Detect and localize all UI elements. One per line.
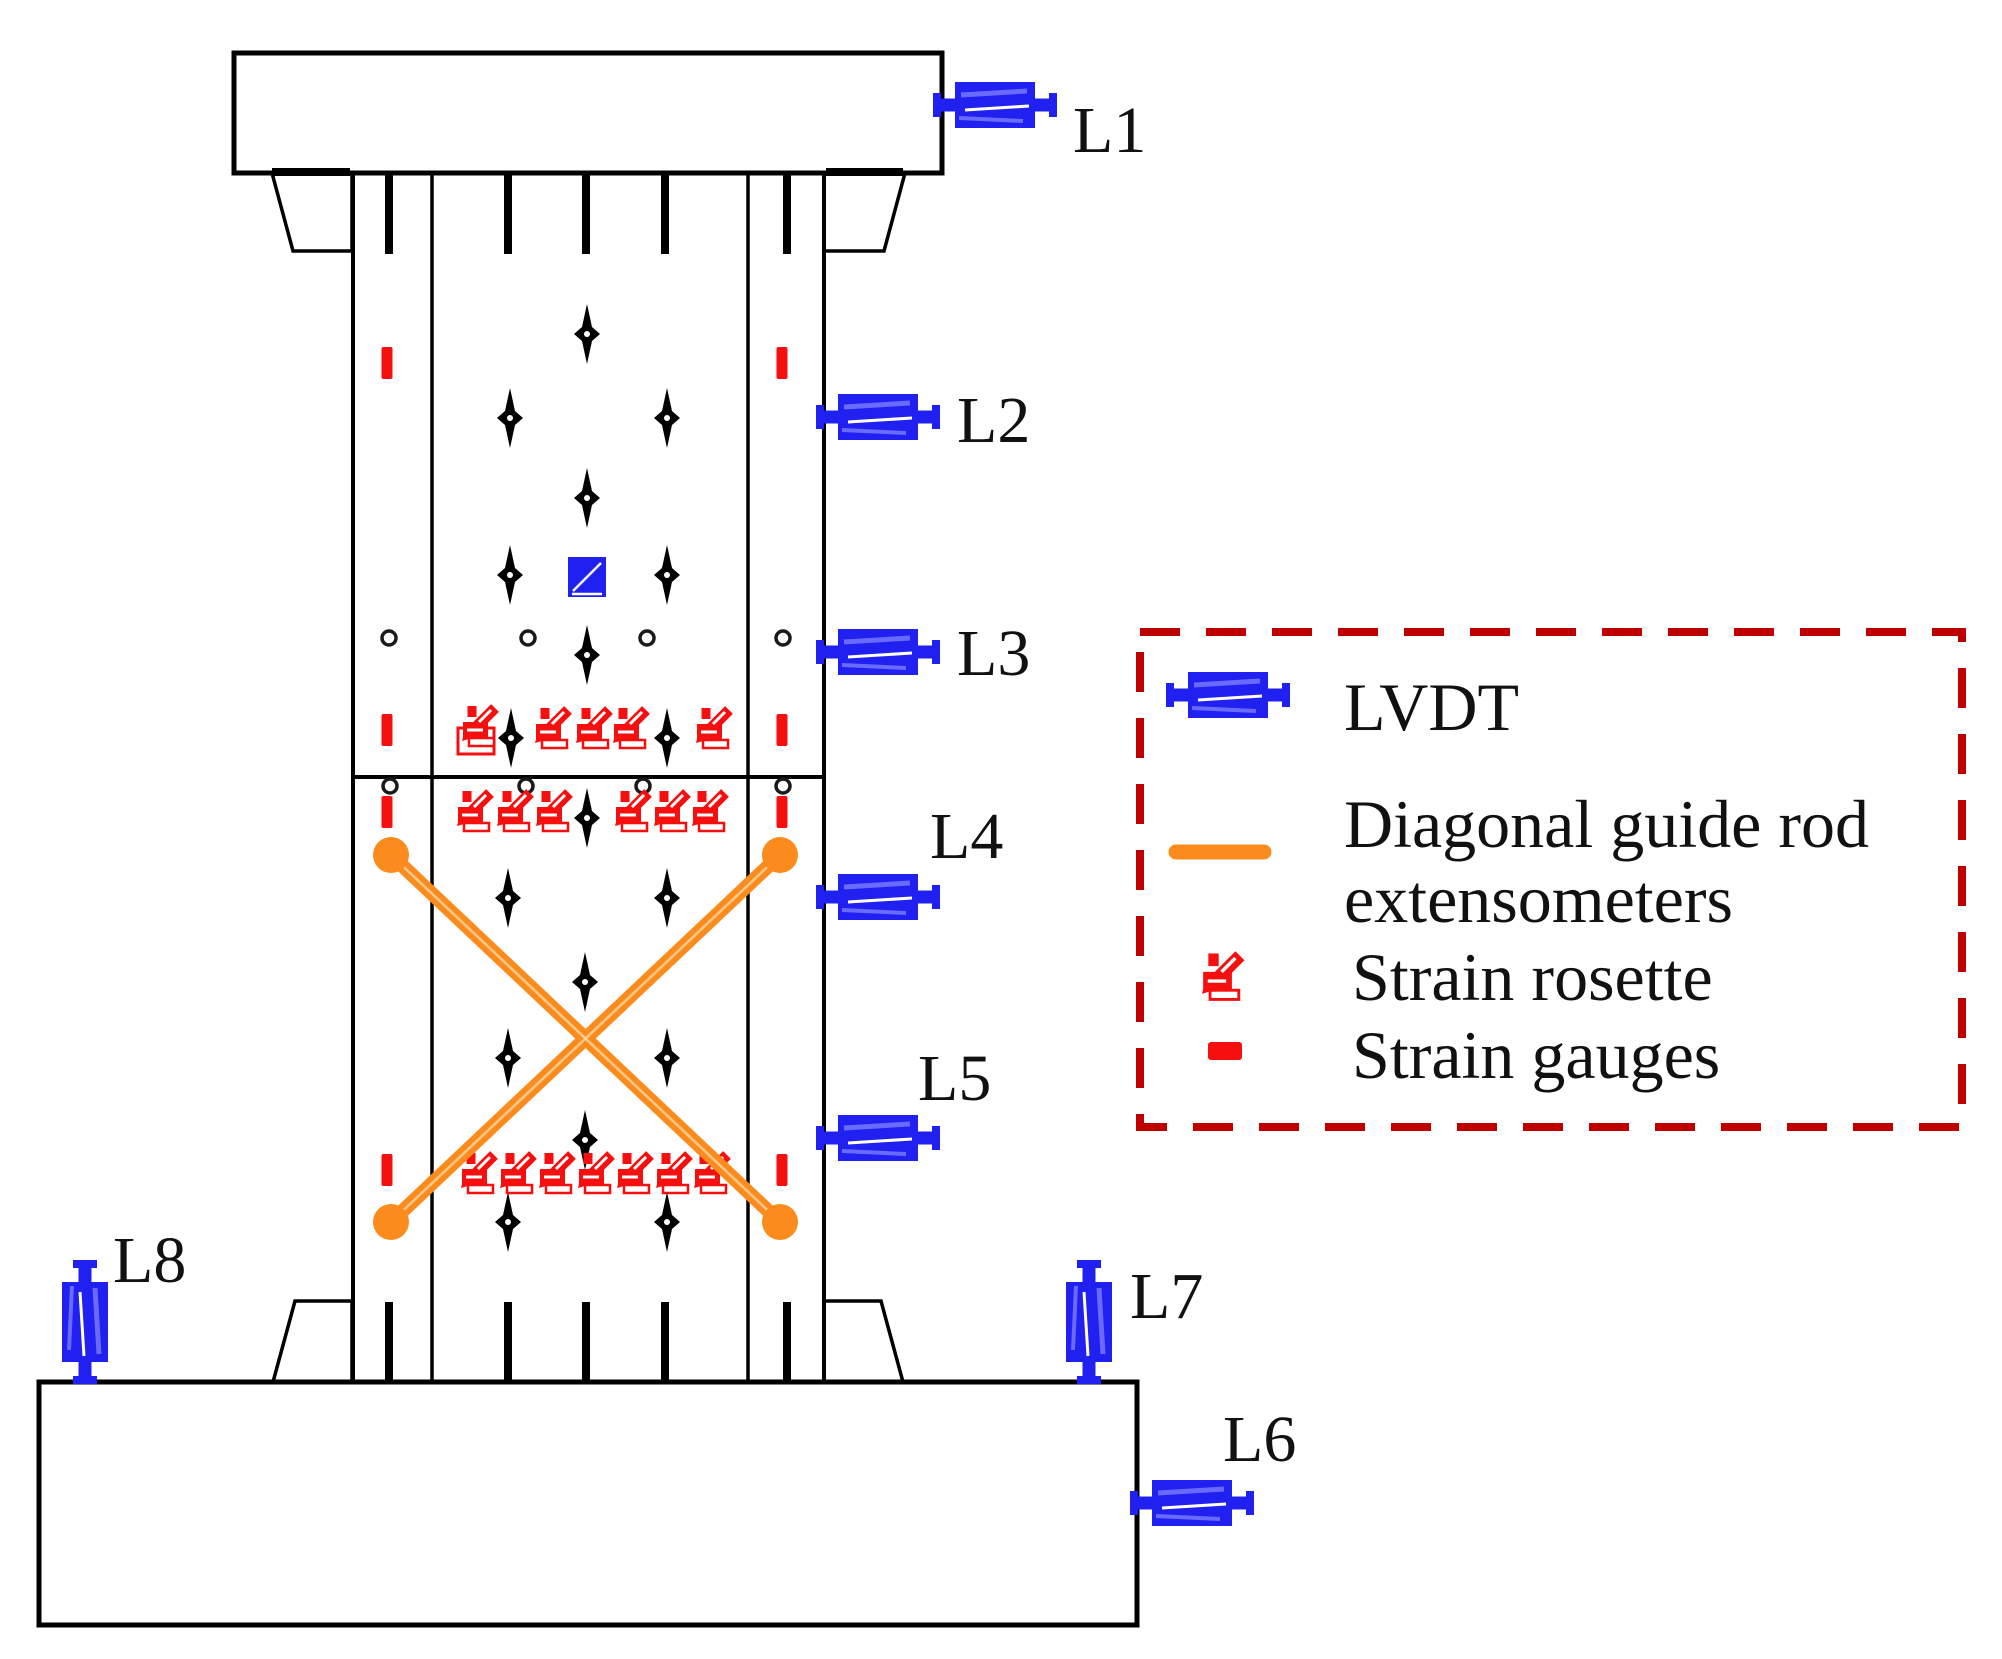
diamond-marker-icon — [654, 388, 680, 448]
lvdt-label-l1: L1 — [1073, 94, 1146, 167]
strain-rosette-icon — [535, 708, 568, 748]
hole-circle-icon — [640, 631, 654, 645]
legend-label-lvdt: LVDT — [1344, 669, 1519, 745]
lvdt-icon — [1166, 672, 1290, 718]
diamond-marker-icon — [654, 545, 680, 605]
strain-gauge-icon — [777, 347, 788, 379]
strain-gauge-icon — [777, 796, 788, 828]
legend-label-extensometer-line1: Diagonal guide rod — [1344, 786, 1869, 862]
diamond-marker-icon — [654, 1028, 680, 1088]
extensometer-anchor — [762, 1204, 798, 1240]
lvdt-label-l6: L6 — [1223, 1403, 1296, 1476]
hole-circle-icon — [521, 631, 535, 645]
diamond-marker-icon — [495, 1028, 521, 1088]
strain-gauge-icon — [382, 796, 393, 828]
bottom-corbel-left — [273, 1301, 352, 1382]
lvdt-label-l4: L4 — [930, 800, 1003, 873]
strain-gauge-icon — [382, 714, 393, 746]
lvdt-l4: L4 — [816, 800, 1003, 920]
legend: LVDT Diagonal guide rod extensometers St… — [1140, 632, 1962, 1127]
diamond-marker-icon — [497, 545, 523, 605]
lvdt-l2: L2 — [816, 384, 1030, 457]
hole-circle-icon — [382, 631, 396, 645]
bottom-rebar-ticks — [389, 1302, 787, 1380]
strain-rosette-icon — [617, 1153, 650, 1193]
strain-gauge-icon — [382, 1154, 393, 1186]
strain-rosette-icon — [656, 1153, 689, 1193]
strain-gauge-icon — [382, 347, 393, 379]
lvdt-l7: L7 — [1066, 1260, 1203, 1384]
strain-gauge-icon — [1208, 1042, 1242, 1060]
strain-gauge-icon — [777, 1154, 788, 1186]
legend-label-gauges: Strain gauges — [1352, 1017, 1720, 1093]
lvdt-label-l7: L7 — [1130, 1260, 1203, 1333]
strain-rosette-icon — [613, 708, 646, 748]
strain-rosette-icon — [692, 791, 725, 831]
diamond-marker-icon — [574, 304, 600, 364]
strain-rosette-icon — [536, 791, 569, 831]
extensometer-anchor — [762, 837, 798, 873]
strain-rosette-row-upper — [458, 706, 729, 754]
strain-rosette-icon — [497, 791, 530, 831]
diamond-marker-icon — [654, 708, 680, 768]
strain-rosette-icon — [696, 708, 729, 748]
strain-rosette-row-lower — [461, 1153, 727, 1193]
diamond-marker-icon — [495, 1192, 521, 1252]
diamond-marker-icon — [654, 1192, 680, 1252]
hole-circle-icon — [776, 631, 790, 645]
strain-rosette-icon — [615, 791, 648, 831]
diamond-marker-icon — [574, 625, 600, 685]
top-corbel-left — [272, 172, 352, 251]
diamond-marker-icon — [495, 868, 521, 928]
strain-rosette-icon — [500, 1153, 533, 1193]
lvdt-label-l2: L2 — [957, 384, 1030, 457]
diamond-marker-icon — [574, 788, 600, 848]
legend-label-rosette: Strain rosette — [1352, 939, 1713, 1015]
foundation-base — [39, 1382, 1137, 1625]
diamond-marker-icon — [572, 952, 598, 1012]
strain-rosette-icon — [457, 791, 490, 831]
top-rebar-ticks — [389, 175, 787, 254]
specimen-instrumentation-diagram: L1 L2 L3 L4 L5 L6 L7 L8 LVDT Diagonal gu… — [0, 0, 2002, 1659]
hole-circle-icon — [776, 779, 790, 793]
strain-rosette-icon — [539, 1153, 572, 1193]
strain-rosette-icon — [654, 791, 687, 831]
lvdt-l3: L3 — [816, 617, 1030, 690]
legend-label-extensometer-line2: extensometers — [1344, 861, 1733, 937]
strain-gauge-icon — [777, 714, 788, 746]
extensometer-anchor — [373, 837, 409, 873]
extensometer-anchor — [373, 1204, 409, 1240]
bottom-corbel-right — [824, 1301, 903, 1382]
diamond-marker-icon — [654, 868, 680, 928]
lvdt-label-l3: L3 — [957, 617, 1030, 690]
diamond-marker-icon — [497, 388, 523, 448]
strain-rosette-icon — [1202, 953, 1240, 999]
lvdt-l6: L6 — [1130, 1403, 1296, 1526]
diamond-marker-icon — [574, 468, 600, 528]
lvdt-l8: L8 — [62, 1224, 186, 1384]
lvdt-label-l8: L8 — [113, 1224, 186, 1297]
lvdt-l5: L5 — [816, 1042, 991, 1161]
lvdt-l1: L1 — [933, 82, 1146, 167]
diamond-marker-icon — [498, 708, 524, 768]
strain-rosette-icon — [576, 708, 609, 748]
hole-circle-icon — [383, 779, 397, 793]
blue-target-square — [568, 557, 606, 597]
strain-gauges — [382, 347, 788, 1186]
lvdt-label-l5: L5 — [918, 1042, 991, 1115]
top-cap-beam — [234, 53, 942, 173]
top-corbel-right — [824, 172, 905, 251]
